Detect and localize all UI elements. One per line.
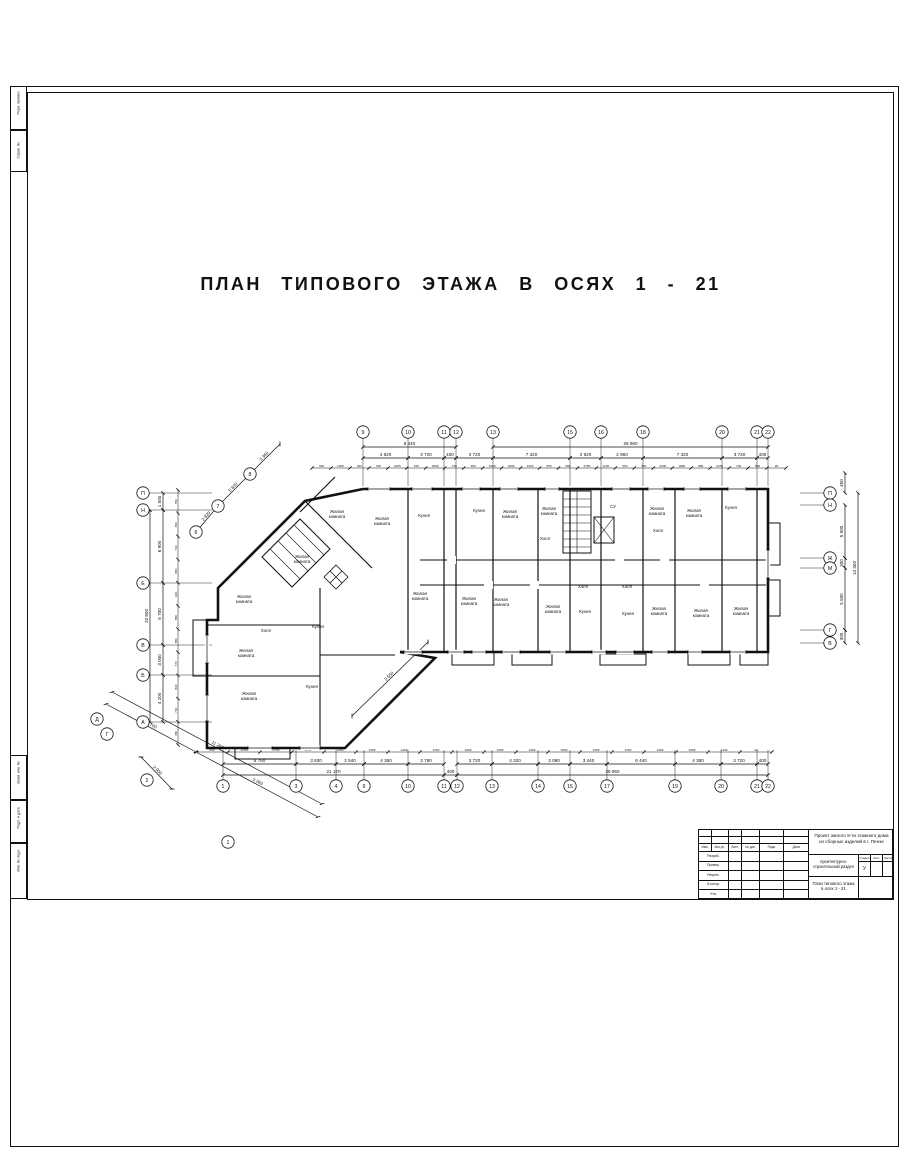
axis-label: 10 (405, 430, 411, 436)
title-block-revision-table: Изм. Кол.уч. Лист № док. Подп. Дата Разр… (699, 830, 809, 898)
axis-label: 8 (249, 472, 252, 478)
dimension-value: 450 (839, 479, 844, 487)
dimension-value: 6 760 (254, 758, 266, 763)
room-label: Кухня (418, 513, 430, 518)
small-dim-value: 1800 (678, 464, 685, 468)
axis-label: 15 (567, 430, 573, 436)
dimension-value: 6 440 (635, 758, 647, 763)
col-list: Лист (729, 844, 742, 851)
axis-label: 1 (222, 784, 225, 790)
axis-label: 13 (489, 784, 495, 790)
axis-label: 2 (146, 778, 149, 784)
small-dim-value: 1450 (593, 748, 600, 752)
room-label: Жилаякомната (329, 509, 346, 519)
dimension-value: 2 960 (616, 452, 628, 457)
axis-label: 21 (754, 430, 760, 436)
room-label: Холл (578, 584, 589, 589)
dimension-value: 400 (759, 452, 767, 457)
room-label: Холл (261, 628, 272, 633)
small-dim-value: 220 (357, 464, 362, 468)
room-label: СУ (610, 504, 616, 509)
dimension-value: 28 960 (605, 769, 619, 774)
small-dim-value: 1200 (527, 464, 534, 468)
room-label: Жилаякомната (493, 597, 510, 607)
room-label: Жилаякомната (502, 509, 519, 519)
small-dim-value: 1250 (497, 748, 504, 752)
dimension-value: 400 (446, 452, 454, 457)
dimension-value: 14 300 (852, 561, 857, 575)
small-dim-value: 1950 (689, 748, 696, 752)
dimension-value: 3 440 (583, 758, 595, 763)
small-dim-value: 450 (174, 731, 178, 736)
small-dim-value: 1150 (433, 748, 440, 752)
axis-label: 4 (335, 784, 338, 790)
dimension-value: 5 700 (157, 608, 162, 620)
dimension-value: 3 720 (420, 452, 432, 457)
axis-label: 6 (195, 530, 198, 536)
drawing-sheet: { "title": "ПЛАН ТИПОВОГО ЭТАЖА В ОСЯХ 1… (0, 0, 910, 1155)
room-label: Жилаякомната (545, 604, 562, 614)
axis-label: 12 (454, 784, 460, 790)
small-dim-value: 1500 (561, 748, 568, 752)
drawing-name: План типового этажа в осях 1 - 21 (809, 877, 859, 898)
axis-label: 20 (719, 430, 725, 436)
col-data: Дата (784, 844, 808, 851)
axis-label: А (141, 720, 145, 726)
stage-header: Стадия (859, 855, 871, 861)
dimension-value: 6 900 (157, 540, 162, 552)
room-label: Кухня (622, 611, 634, 616)
dimension-value: 5 500 (839, 525, 844, 537)
floor-plan-drawing: 8 44028 9604 9203 7204003 7207 3202 9202… (0, 0, 910, 1155)
small-dim-value: 2230 (716, 464, 723, 468)
dimension-value: 300 (839, 632, 844, 640)
dimension-value: 4 380 (692, 758, 704, 763)
small-dim-value: 550 (641, 464, 646, 468)
dimension-value: 4 200 (157, 692, 162, 704)
dimension-value: 2 540 (344, 758, 356, 763)
axis-label: 11 (441, 784, 446, 790)
balconies (193, 523, 780, 759)
axis-label: Б (141, 673, 145, 679)
axis-label: 13 (490, 430, 496, 436)
small-dim-value: 1300 (337, 748, 344, 752)
staircase (262, 519, 330, 587)
dimension-value: 4 920 (380, 452, 392, 457)
stage-value: У (859, 862, 871, 875)
room-label: Жилаякомната (651, 606, 668, 616)
axis-label: Г (106, 732, 109, 738)
axis-label: 1 (227, 840, 230, 846)
axis-label: 9 (362, 430, 365, 436)
dimension-value: 3 830 (310, 758, 322, 763)
room-label: Жилаякомната (374, 516, 391, 526)
small-dim-value: 2225 (394, 464, 401, 468)
col-ndok: № док. (742, 844, 761, 851)
small-dim-value: 1500 (489, 464, 496, 468)
dimension-value: 4 380 (380, 758, 392, 763)
axis-label: 15 (567, 784, 573, 790)
small-dim-value: 1200 (337, 464, 344, 468)
title-block: Изм. Кол.уч. Лист № док. Подп. Дата Разр… (698, 829, 893, 899)
axis-label: 14 (535, 784, 541, 790)
dimension-value: 3 000 (157, 654, 162, 666)
room-label: Кухня (312, 624, 324, 629)
section-name: Архитектурно-строительный раздел (809, 855, 859, 875)
small-dim-value: 390 (319, 464, 324, 468)
col-koluch: Кол.уч. (712, 844, 729, 851)
small-dim-value: 880 (174, 568, 178, 573)
small-dim-value: 1450 (369, 748, 376, 752)
room-label: Жилаякомната (412, 591, 429, 601)
room-label: Холл (540, 536, 551, 541)
small-dim-value: 1300 (529, 748, 536, 752)
small-dim-value: 20 (775, 464, 779, 468)
row-prover: Провер. (699, 862, 729, 871)
axis-label: Е (141, 581, 145, 587)
dimension-value: 21 170 (326, 769, 340, 774)
small-dim-value: 770 (174, 661, 178, 666)
small-dim-value: 890 (698, 464, 703, 468)
axis-label: 11 (441, 430, 446, 436)
small-dim-value: 730 (174, 707, 178, 712)
small-dim-value: 2200 (659, 464, 666, 468)
axis-label: 22 (765, 430, 771, 436)
small-dim-value: 500 (622, 464, 627, 468)
axis-label: 7 (217, 504, 220, 510)
small-dim-value: 790 (376, 464, 381, 468)
room-label: Жилаякомната (241, 691, 258, 701)
room-label: Жилаякомната (461, 596, 478, 606)
room-label: Кухня (473, 508, 485, 513)
dimension-value: 4 320 (509, 758, 521, 763)
dimension-value: 1 500 (157, 495, 162, 507)
dimension-value: 400 (447, 769, 455, 774)
axis-label: Н (141, 508, 145, 514)
small-dim-value: 550 (755, 464, 760, 468)
project-name: Проект жилого 9-ти этажного дома из сбор… (809, 830, 894, 855)
small-dim-value: 1250 (241, 748, 248, 752)
axis-label: В (828, 641, 832, 647)
listov-value (883, 862, 894, 875)
small-dim-value: 1150 (625, 748, 632, 752)
axis-label: В (141, 643, 145, 649)
axis-label: Ж (828, 556, 833, 562)
dimension-value: 7 320 (526, 452, 538, 457)
dimension-value: 20 600 (144, 609, 149, 623)
small-dim-value: 450 (209, 748, 214, 752)
axis-label: Н (828, 503, 832, 509)
room-label: Холл (653, 528, 664, 533)
small-dim-value: 1440 (721, 748, 728, 752)
room-label: Жилаякомната (238, 648, 255, 658)
small-dim-value: 1300 (401, 748, 408, 752)
walls (193, 477, 780, 759)
room-label: Жилаякомната (733, 606, 750, 616)
col-izm: Изм. (699, 844, 712, 851)
dimension-line (106, 704, 196, 752)
room-label: Жилаякомната (294, 554, 311, 564)
dimension-value: 3 720 (734, 452, 746, 457)
dimension-value: 3 080 (548, 758, 560, 763)
small-dim-value: 580 (174, 638, 178, 643)
small-dim-value: 730 (174, 545, 178, 550)
room-label: Жилаякомната (693, 608, 710, 618)
axis-label: П (828, 491, 832, 497)
small-dim-value: 1300 (657, 748, 664, 752)
axis-label: 16 (598, 430, 604, 436)
small-dim-value: 580 (565, 464, 570, 468)
row-nkontr: Н.контр. (699, 881, 729, 890)
dimension-value: 28 960 (623, 441, 637, 446)
dimension-value: 3 720 (469, 758, 481, 763)
axis-label: 22 (765, 784, 771, 790)
row-recenz: Реценз. (699, 871, 729, 880)
small-dim-value: 2750 (583, 464, 590, 468)
small-dim-value: 1900 (465, 748, 472, 752)
small-dim-value: 2050 (432, 464, 439, 468)
axis-label: П (141, 491, 145, 497)
row-utv: Утв. (699, 890, 729, 900)
small-dim-value: 730 (452, 464, 457, 468)
axis-label: Д (95, 717, 99, 723)
room-label: Жилаякомната (541, 506, 558, 516)
axis-label: 3 (295, 784, 298, 790)
small-dim-value: 750 (174, 499, 178, 504)
axis-label: 21 (754, 784, 760, 790)
small-dim-value: 1100 (603, 464, 610, 468)
small-dim-value: 150 (414, 464, 419, 468)
dimension-value: 400 (759, 758, 767, 763)
room-label: Кухня (579, 609, 591, 614)
axis-label: 9 (363, 784, 366, 790)
axis-label: Г (829, 628, 832, 634)
elevator-shaft (324, 565, 348, 589)
small-dim-value: 250 (471, 464, 476, 468)
row-razrab: Разраб. (699, 852, 729, 861)
small-dim-value: 550 (174, 615, 178, 620)
col-podp: Подп. (760, 844, 784, 851)
small-dim-value: 20 (754, 748, 758, 752)
dimension-value: 3 780 (420, 758, 432, 763)
axis-label: 19 (672, 784, 678, 790)
small-dim-value: 600 (174, 591, 178, 596)
axis-label: 12 (453, 430, 459, 436)
dimension-value: 2 920 (580, 452, 592, 457)
title-block-right: Проект жилого 9-ти этажного дома из сбор… (809, 830, 894, 898)
dimension-value: 8 440 (404, 441, 416, 446)
list-value (871, 862, 883, 875)
small-dim-value: 1750 (273, 748, 280, 752)
room-label: Холл (622, 584, 633, 589)
axis-label: 20 (718, 784, 724, 790)
small-dim-value: 550 (546, 464, 551, 468)
organization-cell (859, 877, 894, 898)
axis-label: М (828, 566, 832, 572)
small-dim-value: 890 (174, 684, 178, 689)
axis-label: 17 (604, 784, 610, 790)
stage-table: Стадия Лист Листов У (859, 855, 894, 875)
room-label: Кухня (306, 684, 318, 689)
room-label: Жилаякомната (236, 594, 253, 604)
room-label: Кухня (725, 505, 737, 510)
dimension-value: 3 720 (733, 758, 745, 763)
dimension-value: 5 500 (839, 593, 844, 605)
axis-label: 10 (405, 784, 411, 790)
room-label: Жилаякомната (649, 506, 666, 516)
dimension-value: 7 320 (677, 452, 689, 457)
dimension-line (218, 474, 250, 506)
dimension-value: 300 (839, 559, 844, 567)
list-header: Лист (871, 855, 883, 861)
dimension-value: 3 720 (469, 452, 481, 457)
room-label: Жилаякомната (686, 508, 703, 518)
small-dim-value: 450 (174, 522, 178, 527)
axis-label: 18 (640, 430, 646, 436)
small-dim-value: 1600 (508, 464, 515, 468)
listov-header: Листов (883, 855, 894, 861)
small-dim-value: 730 (736, 464, 741, 468)
